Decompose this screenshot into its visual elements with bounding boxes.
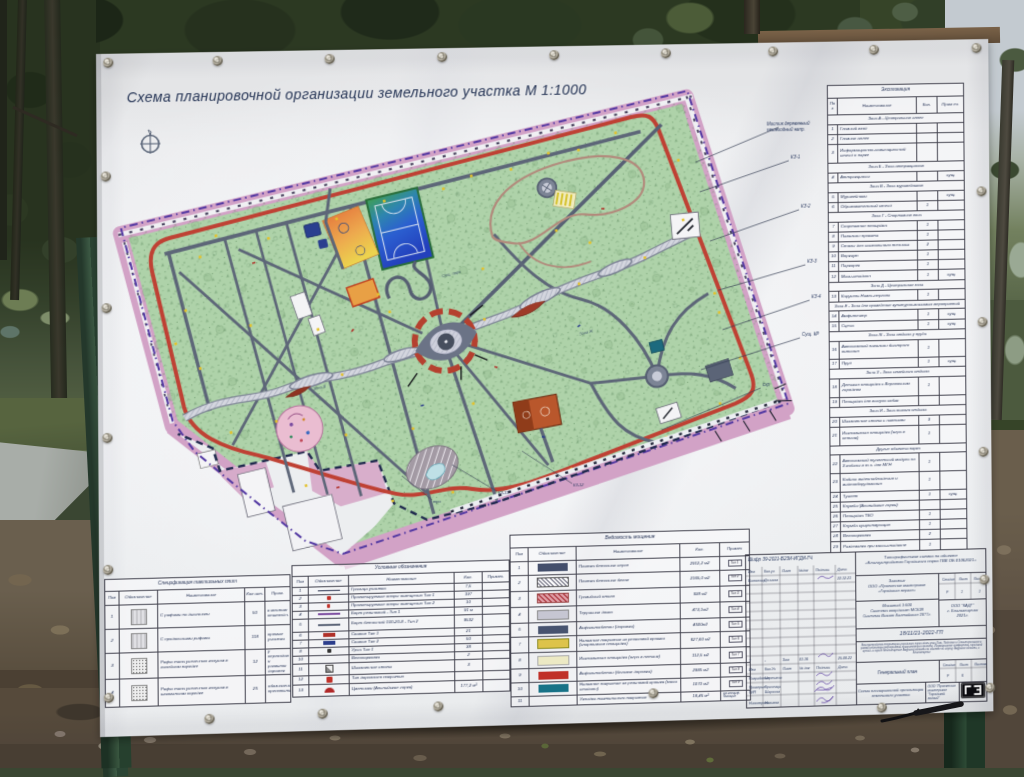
svg-text:№ док: № док — [799, 666, 810, 670]
svg-text:КЗ-1: КЗ-1 — [791, 155, 801, 160]
svg-text:01.16: 01.16 — [799, 657, 808, 661]
svg-text:Проверил: Проверил — [749, 685, 765, 689]
svg-text:Изм: Изм — [749, 668, 756, 672]
svg-text:№док: №док — [799, 569, 809, 573]
svg-text:Дата: Дата — [836, 568, 846, 572]
svg-text:пешеходный напр.: пешеходный напр. — [767, 126, 805, 133]
svg-text:Новиков: Новиков — [765, 701, 779, 705]
svg-text:схр: схр — [763, 382, 770, 387]
svg-text:22.12.21: 22.12.21 — [836, 576, 851, 580]
svg-text:Стадия: Стадия — [942, 663, 955, 667]
svg-text:Изм: Изм — [748, 570, 755, 574]
svg-text:Кол.уч: Кол.уч — [764, 569, 775, 573]
svg-text:Выполнил: Выполнил — [748, 579, 765, 583]
svg-text:Стадия: Стадия — [942, 578, 955, 582]
svg-text:-: - — [765, 659, 767, 663]
svg-text:Кричевца: Кричевца — [765, 685, 781, 689]
svg-text:Зам: Зам — [782, 658, 789, 662]
svg-text:КЗ-11: КЗ-11 — [498, 490, 508, 495]
svg-text:6: 6 — [961, 674, 963, 678]
svg-text:Лист: Лист — [957, 577, 967, 581]
svg-text:Подпись: Подпись — [816, 568, 830, 572]
svg-text:КЗ-2: КЗ-2 — [801, 204, 811, 209]
svg-text:Шаронов: Шаронов — [765, 690, 780, 694]
svg-text:1: 1 — [960, 590, 962, 594]
svg-text:Лист: Лист — [781, 569, 791, 573]
svg-text:ГИП: ГИП — [749, 690, 756, 694]
svg-text:КЗ-3: КЗ-3 — [807, 259, 817, 264]
svg-text:Кол.Уч: Кол.Уч — [765, 667, 776, 671]
svg-text:КЗ-4: КЗ-4 — [812, 294, 822, 299]
svg-text:Подпись: Подпись — [816, 666, 830, 670]
svg-text:Чертилов: Чертилов — [765, 676, 782, 680]
svg-text:1: 1 — [978, 590, 980, 594]
svg-text:Лист: Лист — [782, 667, 792, 671]
svg-text:Лист: Лист — [958, 663, 968, 667]
svg-text:Т: Т — [749, 659, 752, 663]
svg-text:Мостик деревянный: Мостик деревянный — [767, 120, 810, 127]
svg-text:Денисов: Денисов — [763, 578, 778, 582]
svg-text:25.08.22: 25.08.22 — [837, 656, 852, 660]
svg-text:Дата: Дата — [837, 665, 847, 669]
svg-text:Р: Р — [946, 590, 949, 594]
svg-text:КЗ-12: КЗ-12 — [573, 482, 584, 487]
svg-text:тро: тро — [433, 499, 442, 504]
svg-text:Р: Р — [946, 674, 949, 678]
svg-text:Листов: Листов — [973, 662, 986, 666]
svg-text:Сущ. КР: Сущ. КР — [802, 332, 819, 337]
